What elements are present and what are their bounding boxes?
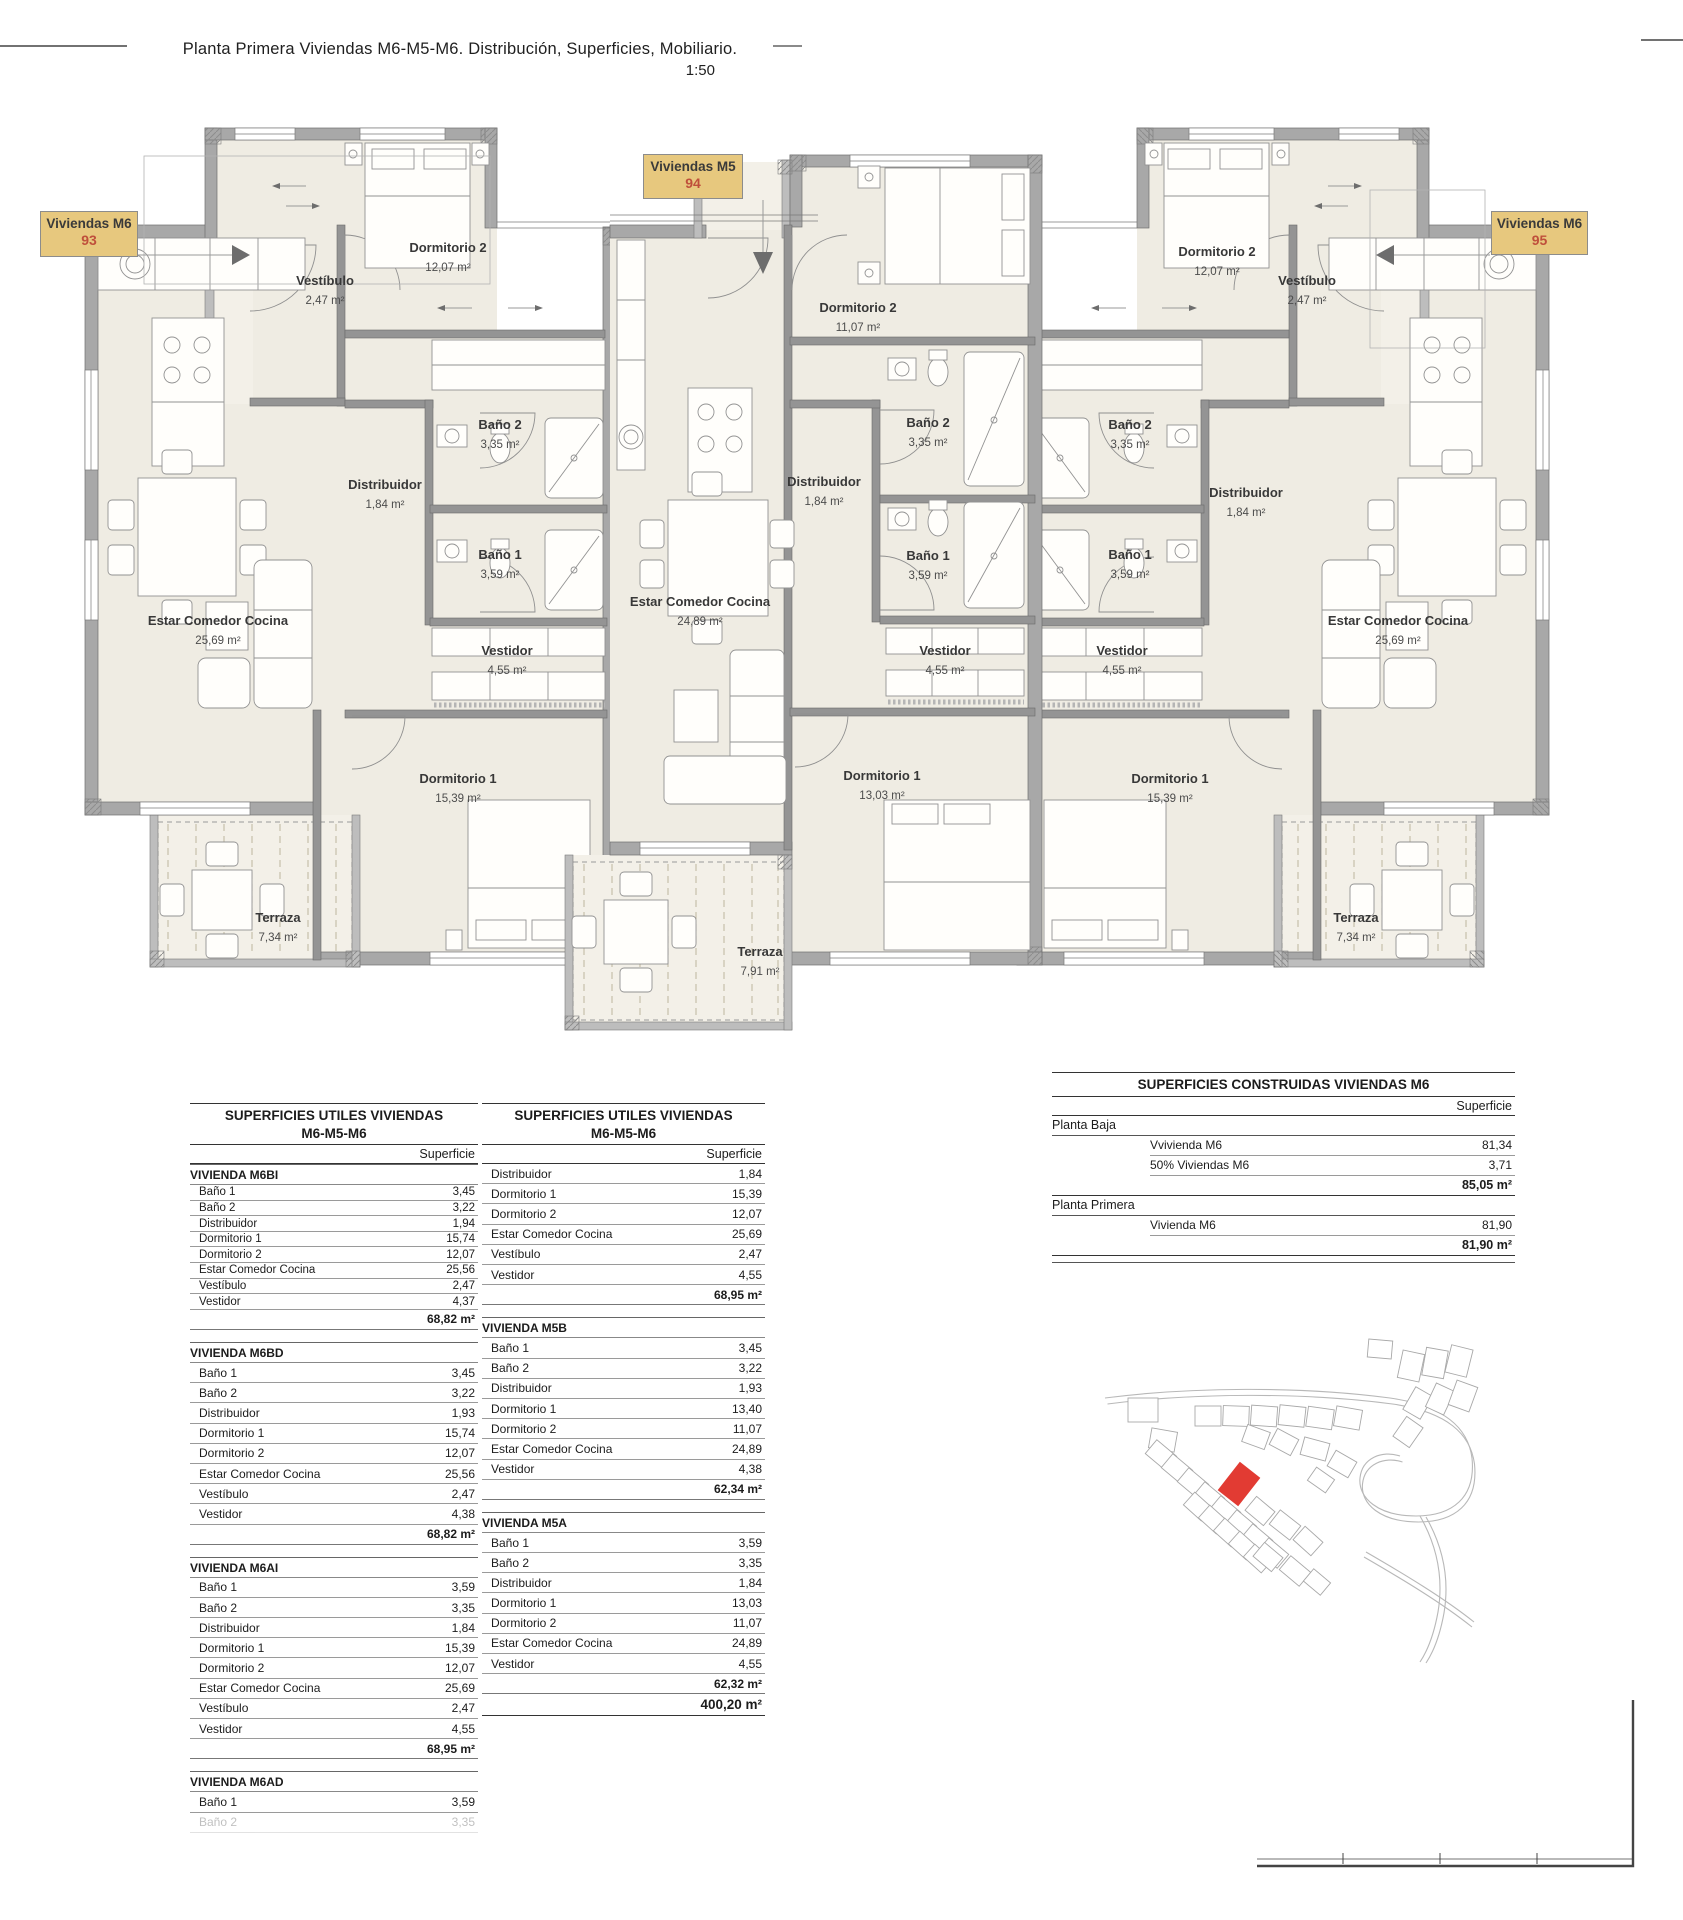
room-name: Baño 1 xyxy=(906,548,949,563)
row-value: 4,55 xyxy=(452,1722,475,1736)
table-row: Baño 23,35 xyxy=(190,1813,478,1833)
row-value: 3,71 xyxy=(1489,1158,1512,1172)
table-superficies-construidas: SUPERFICIES CONSTRUIDAS VIVIENDAS M6Supe… xyxy=(1052,1072,1515,1263)
table-row: Dormitorio 115,39 xyxy=(482,1184,765,1204)
room-name: Estar Comedor Cocina xyxy=(148,613,289,628)
group-header: Planta Primera xyxy=(1052,1196,1515,1216)
table-row: Baño 23,22 xyxy=(190,1383,478,1403)
room-area: 3,59 m² xyxy=(1111,569,1150,581)
table-row: Estar Comedor Cocina24,89 xyxy=(482,1634,765,1654)
row-value: 4,38 xyxy=(739,1462,762,1476)
table-row: Estar Comedor Cocina25,69 xyxy=(482,1225,765,1245)
site-map-houses xyxy=(1128,1339,1478,1595)
room-name: Dormitorio 2 xyxy=(409,240,486,255)
table-superficies-utiles-right: SUPERFICIES UTILES VIVIENDASM6-M5-M6Supe… xyxy=(482,1103,765,1716)
site-map-house xyxy=(1269,1428,1299,1455)
row-label: Vestidor xyxy=(199,1722,242,1736)
table-row: Dormitorio 115,74 xyxy=(190,1424,478,1444)
row-value: 12,07 xyxy=(446,1249,475,1261)
section-header: VIVIENDA M6BI xyxy=(190,1164,478,1185)
table-row: Baño 13,45 xyxy=(482,1338,765,1358)
row-value: 25,56 xyxy=(446,1264,475,1276)
table-row: Estar Comedor Cocina25,56 xyxy=(190,1263,478,1279)
room-name: Baño 2 xyxy=(906,415,949,430)
row-label: Vestidor xyxy=(491,1268,534,1282)
title-block: Planta Primera Viviendas M6-M5-M6. Distr… xyxy=(120,40,800,79)
row-value: 2,47 xyxy=(452,1487,475,1501)
row-value: 12,07 xyxy=(732,1207,762,1221)
section-header: VIVIENDA M5B xyxy=(482,1317,765,1338)
section-total: 68,95 m² xyxy=(482,1285,765,1305)
room-name: Dormitorio 1 xyxy=(419,771,496,786)
unit-tag-label: Viviendas M6 xyxy=(1494,216,1585,231)
table-row: Baño 23,35 xyxy=(190,1598,478,1618)
room-area: 12,07 m² xyxy=(1194,266,1240,278)
row-value: 25,56 xyxy=(445,1467,475,1481)
site-map xyxy=(1105,1339,1478,1663)
row-label: Baño 1 xyxy=(199,1580,237,1594)
row-value: 2,47 xyxy=(739,1247,762,1261)
row-label: Vivienda M6 xyxy=(1150,1218,1216,1232)
table-title: SUPERFICIES UTILES VIVIENDASM6-M5-M6 xyxy=(482,1103,765,1145)
site-map-house xyxy=(1422,1347,1449,1378)
table-superficies-utiles-left: SUPERFICIES UTILES VIVIENDASM6-M5-M6Supe… xyxy=(190,1103,478,1833)
row-label: 50% Viviendas M6 xyxy=(1150,1158,1249,1172)
row-value: 15,74 xyxy=(446,1233,475,1245)
table-row: Estar Comedor Cocina24,89 xyxy=(482,1439,765,1459)
row-label: Dormitorio 1 xyxy=(199,1641,264,1655)
row-label: Distribuidor xyxy=(199,1621,260,1635)
row-label: Dormitorio 1 xyxy=(199,1233,262,1245)
row-label: Baño 2 xyxy=(199,1815,237,1829)
section-header: VIVIENDA M6BD xyxy=(190,1342,478,1363)
section-total: 68,95 m² xyxy=(190,1739,478,1759)
table-row: Vestidor4,38 xyxy=(482,1460,765,1480)
table-row: Vestíbulo2,47 xyxy=(482,1245,765,1265)
table-row: Vestíbulo2,47 xyxy=(190,1699,478,1719)
room-name: Dormitorio 1 xyxy=(843,768,920,783)
row-value: 4,38 xyxy=(452,1507,475,1521)
unit-tag-93: Viviendas M6 93 xyxy=(40,211,138,257)
table-section: VIVIENDA M5BBaño 13,45Baño 23,22Distribu… xyxy=(482,1317,765,1500)
table-title-line: SUPERFICIES UTILES VIVIENDAS xyxy=(190,1107,478,1125)
table-row: Dormitorio 115,74 xyxy=(190,1232,478,1248)
table-title-line: M6-M5-M6 xyxy=(190,1125,478,1143)
row-label: Baño 2 xyxy=(491,1556,529,1570)
table-end-rule xyxy=(1052,1256,1515,1263)
column-header: Superficie xyxy=(1052,1097,1515,1116)
row-value: 3,45 xyxy=(452,1366,475,1380)
row-value: 3,35 xyxy=(452,1815,475,1829)
table-section: VIVIENDA M5ABaño 13,59Baño 23,35Distribu… xyxy=(482,1512,765,1695)
row-value: 25,69 xyxy=(732,1227,762,1241)
table-row: Dormitorio 113,03 xyxy=(482,1593,765,1613)
room-name: Estar Comedor Cocina xyxy=(1328,613,1469,628)
site-map-house xyxy=(1445,1345,1473,1377)
room-area: 7,34 m² xyxy=(1337,932,1376,944)
table-row: Dormitorio 212,07 xyxy=(190,1247,478,1263)
row-value: 13,40 xyxy=(732,1402,762,1416)
site-map-house xyxy=(1128,1398,1158,1422)
room-area: 15,39 m² xyxy=(435,793,481,805)
row-value: 2,47 xyxy=(453,1280,475,1292)
site-map-house xyxy=(1448,1380,1478,1412)
room-area: 3,35 m² xyxy=(1111,439,1150,451)
row-value: 3,45 xyxy=(453,1186,475,1198)
site-map-house xyxy=(1367,1339,1392,1359)
table-row: Dormitorio 212,07 xyxy=(190,1444,478,1464)
room-name: Dormitorio 2 xyxy=(819,300,896,315)
section-header: VIVIENDA M6AI xyxy=(190,1557,478,1578)
site-map-house xyxy=(1223,1406,1250,1427)
room-area: 4,55 m² xyxy=(926,665,965,677)
unit-tag-label: Viviendas M5 xyxy=(646,159,740,174)
table-section: Distribuidor1,84Dormitorio 115,39Dormito… xyxy=(482,1164,765,1305)
row-label: Estar Comedor Cocina xyxy=(199,1467,320,1481)
row-label: Dormitorio 2 xyxy=(491,1207,556,1221)
row-value: 15,74 xyxy=(445,1426,475,1440)
site-map-house xyxy=(1269,1510,1301,1540)
room-name: Vestíbulo xyxy=(1278,273,1336,288)
table-row: Vestidor4,38 xyxy=(190,1504,478,1524)
table-row: Distribuidor1,84 xyxy=(190,1618,478,1638)
table-row: Distribuidor1,84 xyxy=(482,1164,765,1184)
site-map-house xyxy=(1393,1416,1423,1447)
table-row: Baño 13,59 xyxy=(190,1792,478,1812)
table-row: Vivienda M681,90 xyxy=(1150,1216,1515,1236)
row-value: 25,69 xyxy=(445,1681,475,1695)
table-section: VIVIENDA M6AIBaño 13,59Baño 23,35Distrib… xyxy=(190,1557,478,1760)
room-name: Dormitorio 2 xyxy=(1178,244,1255,259)
unit-tag-95: Viviendas M6 95 xyxy=(1491,211,1588,255)
room-name: Terraza xyxy=(255,910,301,925)
site-map-house xyxy=(1306,1406,1335,1429)
column-header: Superficie xyxy=(190,1145,478,1164)
table-row: Dormitorio 212,07 xyxy=(482,1204,765,1224)
row-value: 11,07 xyxy=(733,1422,762,1436)
row-label: Estar Comedor Cocina xyxy=(491,1227,612,1241)
row-label: Dormitorio 2 xyxy=(491,1422,556,1436)
page-title: Planta Primera Viviendas M6-M5-M6. Distr… xyxy=(120,40,800,59)
row-value: 1,84 xyxy=(739,1576,762,1590)
row-label: Estar Comedor Cocina xyxy=(491,1636,612,1650)
row-value: 24,89 xyxy=(732,1636,762,1650)
table-row: Vestidor4,55 xyxy=(482,1265,765,1285)
room-area: 25,69 m² xyxy=(195,635,241,647)
row-value: 3,59 xyxy=(452,1580,475,1594)
section-total: 62,34 m² xyxy=(482,1480,765,1500)
unit-m5-center xyxy=(565,155,1042,1030)
row-label: Baño 1 xyxy=(199,1186,235,1198)
unit-m6-right xyxy=(1017,128,1549,967)
row-label: Dormitorio 1 xyxy=(491,1596,556,1610)
row-label: Dormitorio 2 xyxy=(199,1249,262,1261)
unit-tag-label: Viviendas M6 xyxy=(43,216,135,231)
room-area: 24,89 m² xyxy=(677,616,723,628)
row-label: Dormitorio 2 xyxy=(199,1661,264,1675)
row-value: 81,34 xyxy=(1482,1138,1512,1152)
row-label: Baño 2 xyxy=(491,1361,529,1375)
row-value: 15,39 xyxy=(732,1187,762,1201)
room-area: 2,47 m² xyxy=(1288,295,1327,307)
table-title: SUPERFICIES CONSTRUIDAS VIVIENDAS M6 xyxy=(1052,1072,1515,1097)
sheet: Vestíbulo2,47 m²Dormitorio 212,07 m²Dist… xyxy=(0,0,1683,1920)
unit-tag-number: 95 xyxy=(1494,232,1585,248)
row-value: 4,55 xyxy=(739,1268,762,1282)
room-area: 2,47 m² xyxy=(306,295,345,307)
table-row: Vestidor4,37 xyxy=(190,1294,478,1310)
row-value: 1,94 xyxy=(453,1218,475,1230)
row-label: Distribuidor xyxy=(199,1406,260,1420)
table-row: Distribuidor1,84 xyxy=(482,1573,765,1593)
row-value: 3,22 xyxy=(452,1386,475,1400)
row-value: 3,22 xyxy=(453,1202,475,1214)
row-value: 2,47 xyxy=(452,1701,475,1715)
table-section: VIVIENDA M6ADBaño 13,59Baño 23,35 xyxy=(190,1771,478,1832)
site-map-house xyxy=(1307,1467,1334,1493)
row-value: 12,07 xyxy=(445,1661,475,1675)
row-label: Dormitorio 2 xyxy=(199,1446,264,1460)
site-map-house xyxy=(1300,1437,1330,1461)
row-label: Vestidor xyxy=(199,1296,241,1308)
table-row: Vestíbulo2,47 xyxy=(190,1279,478,1295)
room-area: 1,84 m² xyxy=(366,499,405,511)
column-header: Superficie xyxy=(482,1145,765,1164)
site-map-house xyxy=(1195,1406,1221,1426)
room-area: 12,07 m² xyxy=(425,262,471,274)
row-value: 13,03 xyxy=(732,1596,762,1610)
row-value: 15,39 xyxy=(445,1641,475,1655)
row-value: 1,93 xyxy=(452,1406,475,1420)
row-value: 4,55 xyxy=(739,1657,762,1671)
row-label: Vestidor xyxy=(491,1462,534,1476)
room-area: 25,69 m² xyxy=(1375,635,1421,647)
row-label: Dormitorio 1 xyxy=(491,1402,556,1416)
room-area: 15,39 m² xyxy=(1147,793,1193,805)
room-name: Baño 2 xyxy=(478,417,521,432)
room-name: Baño 1 xyxy=(1108,547,1151,562)
room-name: Baño 1 xyxy=(478,547,521,562)
room-name: Dormitorio 1 xyxy=(1131,771,1208,786)
table-row: Dormitorio 212,07 xyxy=(190,1658,478,1678)
room-name: Terraza xyxy=(737,944,783,959)
row-value: 1,84 xyxy=(452,1621,475,1635)
site-map-house xyxy=(1327,1450,1357,1478)
room-area: 4,55 m² xyxy=(488,665,527,677)
row-label: Estar Comedor Cocina xyxy=(491,1442,612,1456)
table-row: Baño 23,35 xyxy=(482,1553,765,1573)
table-row: Estar Comedor Cocina25,69 xyxy=(190,1679,478,1699)
table-row: Vestidor4,55 xyxy=(482,1654,765,1674)
row-value: 81,90 xyxy=(1482,1218,1512,1232)
row-label: Baño 1 xyxy=(199,1795,237,1809)
row-label: Vestíbulo xyxy=(199,1701,248,1715)
row-label: Vestíbulo xyxy=(491,1247,540,1261)
room-area: 7,91 m² xyxy=(741,966,780,978)
row-value: 3,59 xyxy=(739,1536,762,1550)
room-name: Vestidor xyxy=(1096,643,1147,658)
table-title-line: M6-M5-M6 xyxy=(482,1125,765,1143)
row-value: 24,89 xyxy=(732,1442,762,1456)
room-area: 7,34 m² xyxy=(259,932,298,944)
table-title-line: SUPERFICIES UTILES VIVIENDAS xyxy=(482,1107,765,1125)
row-value: 3,35 xyxy=(452,1601,475,1615)
row-label: Estar Comedor Cocina xyxy=(199,1264,315,1276)
site-map-house xyxy=(1250,1405,1277,1427)
table-row: Dormitorio 115,39 xyxy=(190,1638,478,1658)
table-row: Distribuidor1,94 xyxy=(190,1216,478,1232)
row-label: Dormitorio 2 xyxy=(491,1616,556,1630)
table-row: Distribuidor1,93 xyxy=(482,1379,765,1399)
group-total: 81,90 m² xyxy=(1052,1236,1515,1256)
site-map-house xyxy=(1242,1424,1271,1449)
table-row: Vvivienda M681,34 xyxy=(1150,1136,1515,1156)
row-label: Vestidor xyxy=(199,1507,242,1521)
room-name: Vestidor xyxy=(919,643,970,658)
room-name: Distribuidor xyxy=(348,477,422,492)
table-row: Baño 23,22 xyxy=(482,1359,765,1379)
room-area: 3,59 m² xyxy=(481,569,520,581)
table-title: SUPERFICIES UTILES VIVIENDASM6-M5-M6 xyxy=(190,1103,478,1145)
row-value: 1,93 xyxy=(739,1381,762,1395)
room-name: Distribuidor xyxy=(1209,485,1283,500)
room-name: Vestidor xyxy=(481,643,532,658)
row-value: 1,84 xyxy=(739,1167,762,1181)
row-label: Baño 2 xyxy=(199,1386,237,1400)
section-total: 62,32 m² xyxy=(482,1674,765,1694)
table-row: Baño 13,59 xyxy=(190,1578,478,1598)
row-label: Estar Comedor Cocina xyxy=(199,1681,320,1695)
row-label: Baño 1 xyxy=(199,1366,237,1380)
unit-tag-number: 94 xyxy=(646,175,740,191)
table-row: Baño 13,59 xyxy=(482,1533,765,1553)
room-name: Baño 2 xyxy=(1108,417,1151,432)
room-area: 1,84 m² xyxy=(805,496,844,508)
table-row: Dormitorio 211,07 xyxy=(482,1419,765,1439)
row-value: 4,37 xyxy=(453,1296,475,1308)
room-area: 3,35 m² xyxy=(481,439,520,451)
row-label: Baño 1 xyxy=(491,1536,529,1550)
row-value: 3,22 xyxy=(739,1361,762,1375)
unit-m6-left xyxy=(85,128,617,967)
unit-tag-number: 93 xyxy=(43,232,135,248)
table-section: VIVIENDA M6BIBaño 13,45Baño 23,22Distrib… xyxy=(190,1164,478,1330)
room-name: Terraza xyxy=(1333,910,1379,925)
row-label: Distribuidor xyxy=(491,1167,552,1181)
table-row: Estar Comedor Cocina25,56 xyxy=(190,1464,478,1484)
unit-tag-94: Viviendas M5 94 xyxy=(643,154,743,199)
row-label: Baño 2 xyxy=(199,1601,237,1615)
room-name: Vestíbulo xyxy=(296,273,354,288)
row-value: 3,59 xyxy=(452,1795,475,1809)
table-row: Distribuidor1,93 xyxy=(190,1403,478,1423)
table-row: Vestidor4,55 xyxy=(190,1719,478,1739)
room-area: 11,07 m² xyxy=(836,322,881,334)
table-row: 50% Viviendas M63,71 xyxy=(1150,1156,1515,1176)
room-name: Estar Comedor Cocina xyxy=(630,594,771,609)
table-row: Baño 23,22 xyxy=(190,1201,478,1217)
row-value: 3,35 xyxy=(739,1556,762,1570)
room-area: 13,03 m² xyxy=(859,790,905,802)
table-section: VIVIENDA M6BDBaño 13,45Baño 23,22Distrib… xyxy=(190,1342,478,1545)
row-label: Distribuidor xyxy=(491,1576,552,1590)
room-area: 1,84 m² xyxy=(1227,507,1266,519)
table-row: Dormitorio 211,07 xyxy=(482,1614,765,1634)
row-label: Distribuidor xyxy=(491,1381,552,1395)
group-total: 85,05 m² xyxy=(1052,1176,1515,1196)
site-map-house xyxy=(1397,1350,1424,1382)
table-row: Baño 13,45 xyxy=(190,1363,478,1383)
row-label: Vestíbulo xyxy=(199,1280,246,1292)
room-name: Distribuidor xyxy=(787,474,861,489)
site-map-house xyxy=(1333,1406,1362,1430)
row-label: Dormitorio 1 xyxy=(199,1426,264,1440)
section-total: 68,82 m² xyxy=(190,1310,478,1330)
scale-label: 1:50 xyxy=(120,62,800,79)
row-label: Distribuidor xyxy=(199,1218,257,1230)
room-area: 3,35 m² xyxy=(909,437,948,449)
table-row: Dormitorio 113,40 xyxy=(482,1399,765,1419)
table-row: Baño 13,45 xyxy=(190,1185,478,1201)
row-label: Baño 1 xyxy=(491,1341,529,1355)
section-header: VIVIENDA M5A xyxy=(482,1512,765,1533)
group-header: Planta Baja xyxy=(1052,1116,1515,1136)
row-value: 12,07 xyxy=(445,1446,475,1460)
room-area: 4,55 m² xyxy=(1103,665,1142,677)
section-total: 68,82 m² xyxy=(190,1525,478,1545)
row-label: Vvivienda M6 xyxy=(1150,1138,1222,1152)
table-row: Vestíbulo2,47 xyxy=(190,1484,478,1504)
grand-total: 400,20 m² xyxy=(482,1694,765,1716)
section-header: VIVIENDA M6AD xyxy=(190,1771,478,1792)
row-label: Vestíbulo xyxy=(199,1487,248,1501)
row-value: 11,07 xyxy=(733,1616,762,1630)
row-label: Dormitorio 1 xyxy=(491,1187,556,1201)
row-label: Vestidor xyxy=(491,1657,534,1671)
site-map-house xyxy=(1278,1405,1306,1428)
row-value: 3,45 xyxy=(739,1341,762,1355)
row-label: Baño 2 xyxy=(199,1202,235,1214)
room-area: 3,59 m² xyxy=(909,570,948,582)
